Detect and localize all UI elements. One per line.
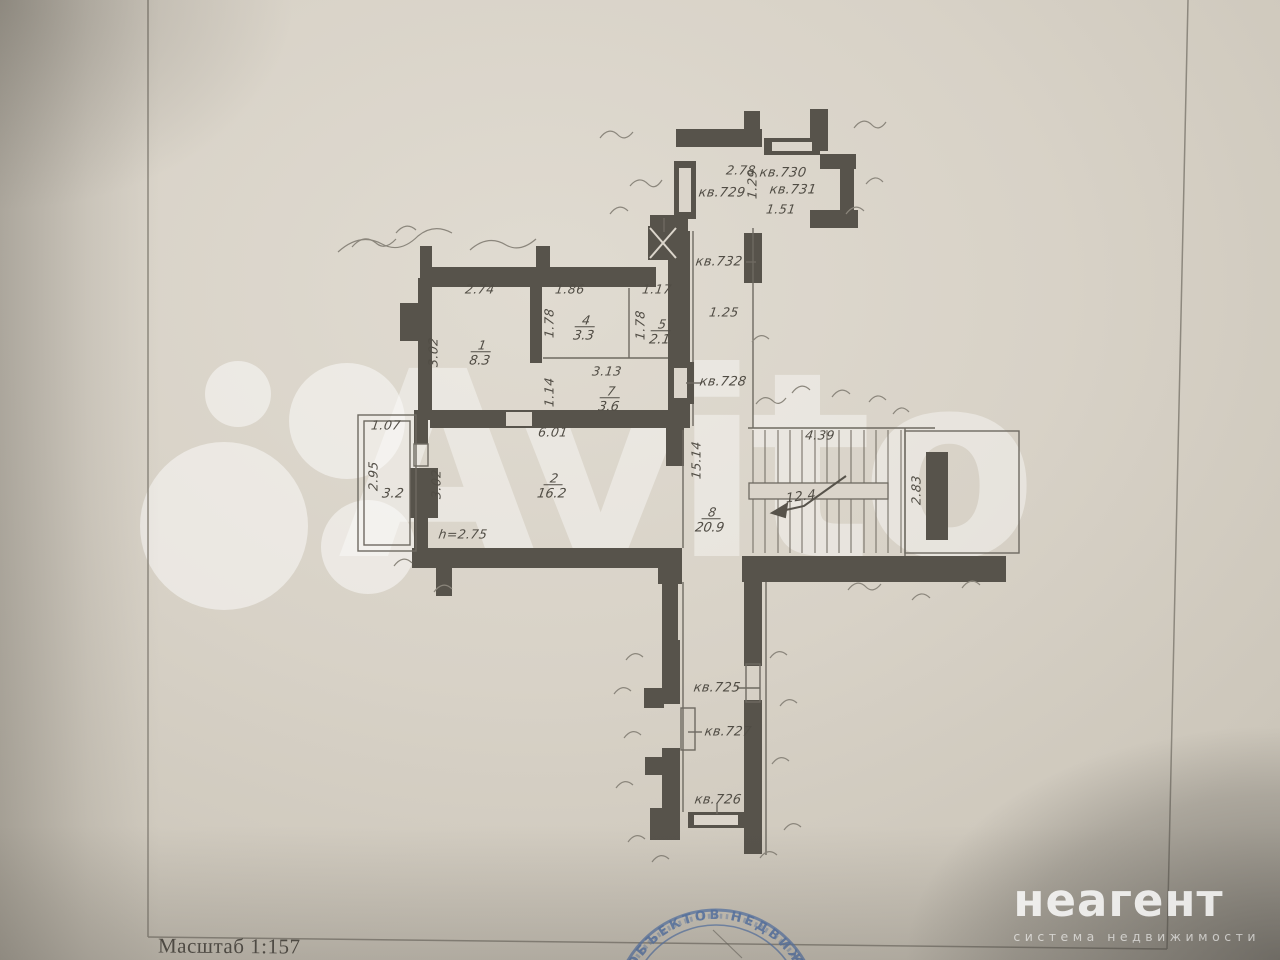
room-area: 20.9 [694,521,725,535]
scale-caption: Масштаб 1:157 [158,934,301,960]
dim-label: 1.29 [745,168,760,199]
registry-stamp: ОБЪЕКТОВ НЕДВИЖ [614,908,818,960]
apartment-label: кв.728 [699,375,748,390]
room-number: 2 [543,471,565,485]
room-area: 3.6 [597,400,620,414]
dim-label: 15.14 [689,440,704,479]
ceiling-height-label: h=2.75 [438,527,489,542]
photo-shadow-left [0,0,160,960]
neagent-logo-tagline: система недвижимости [1013,929,1260,944]
dim-label: 1.07 [370,418,402,433]
room-number: 8 [701,505,723,519]
dim-label: 2.95 [366,460,381,491]
dim-label: 1.25 [708,305,740,320]
room-label: 8 20.9 [694,503,728,534]
room-area: 3.3 [572,329,595,343]
dim-label: 3.13 [591,364,623,379]
dim-label: 6.01 [537,425,569,440]
room-number: 4 [575,313,597,327]
room-label: 2 16.2 [536,469,570,500]
room-area: 16.2 [536,487,567,501]
apartment-label: кв.729 [698,186,747,201]
dim-label: 3.02 [429,468,444,499]
dim-label: 1.78 [633,309,648,340]
apartment-label: кв.725 [693,681,742,696]
floor-plan-photo: Avito [0,0,1280,960]
apartment-label: кв.732 [695,255,744,270]
dim-label: 2.74 [464,282,496,297]
room-number: 1 [471,338,493,352]
dim-label: 1.17 [641,282,673,297]
dim-label: 1.86 [554,282,586,297]
dim-label: 1.78 [542,307,557,338]
apartment-label: кв.727 [704,725,753,740]
room-number: 5 [651,317,673,331]
dim-label: 1.14 [542,376,557,407]
dim-label: 2.83 [909,474,924,505]
room-area: 8.3 [468,354,491,368]
apartment-label: кв.730 [759,166,808,181]
neagent-logo: неагент система недвижимости [1013,878,1260,944]
neagent-logo-name: неагент [1013,878,1260,923]
dim-label: 1.51 [765,202,797,217]
room-area: 2.1 [648,333,671,347]
apartment-label: кв.731 [769,183,818,198]
apartment-label: кв.726 [694,793,743,808]
dim-label: 3.02 [426,336,441,367]
dim-label: 4.39 [804,428,836,443]
balcony-area-label: 3.2 [381,487,405,502]
room-number: 7 [600,384,622,398]
floor-plan-drawing: ОБЪЕКТОВ НЕДВИЖ [0,0,1280,960]
